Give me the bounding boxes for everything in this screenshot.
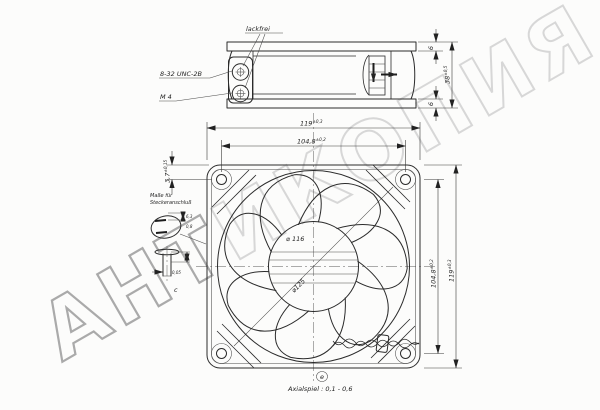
dim-tab-thickness: 0,8 <box>186 224 193 229</box>
section-label-c: c <box>174 286 178 294</box>
dim-hole-spacing-v: 104,8±0,2 <box>429 259 438 288</box>
unc-thread-label: 8-32 UNC-2B <box>160 70 202 78</box>
dim-tab-width: 6,3 <box>186 214 193 219</box>
technical-drawing-page: АНТИКОПИЯ <box>0 0 600 410</box>
screw-hole-top <box>232 64 248 80</box>
connector-title-line2: Steckeranschluß <box>150 200 191 206</box>
unc-thread-callout: 8-32 UNC-2B <box>159 70 232 78</box>
height-dimensions: 104,8±0,2 119±0,3 <box>424 165 462 368</box>
dim-venturi-diameter: ⌀ 116 <box>286 235 304 243</box>
impeller-hub-side <box>363 55 369 95</box>
dim-hole-offset: 3,7±0,15 <box>163 159 171 183</box>
side-top-flange <box>227 42 416 51</box>
watermark-text-dark: АНТ <box>25 199 243 379</box>
lackfrei-callout: lackfrei <box>243 25 283 88</box>
dim-height: 119±0,3 <box>447 259 456 282</box>
dim-blade-circle-diameter: ⌀125 <box>290 277 307 294</box>
connector-title-line1: Maße für <box>150 193 173 199</box>
footer: e Axialspiel : 0,1 - 0,6 <box>287 372 353 394</box>
m4-thread-callout: M 4 <box>159 93 232 101</box>
axial-play-label: Axialspiel : 0,1 - 0,6 <box>287 385 353 393</box>
svg-text:АНТИКОПИЯ: АНТИКОПИЯ <box>25 0 600 378</box>
lackfrei-label: lackfrei <box>246 25 270 33</box>
m4-thread-label: M 4 <box>160 93 172 101</box>
dim-tab-tol: 0,05 <box>172 270 181 275</box>
dim-flange-top: 6 <box>427 46 435 50</box>
watermark: АНТИКОПИЯ <box>25 0 600 378</box>
section-label-e: e <box>320 373 324 381</box>
dim-flange-bottom: 6 <box>427 102 435 106</box>
dim-width: 119±0,3 <box>300 119 323 128</box>
hole-offset-dimension: 3,7±0,15 <box>163 151 212 194</box>
cable-clamp <box>376 334 389 352</box>
